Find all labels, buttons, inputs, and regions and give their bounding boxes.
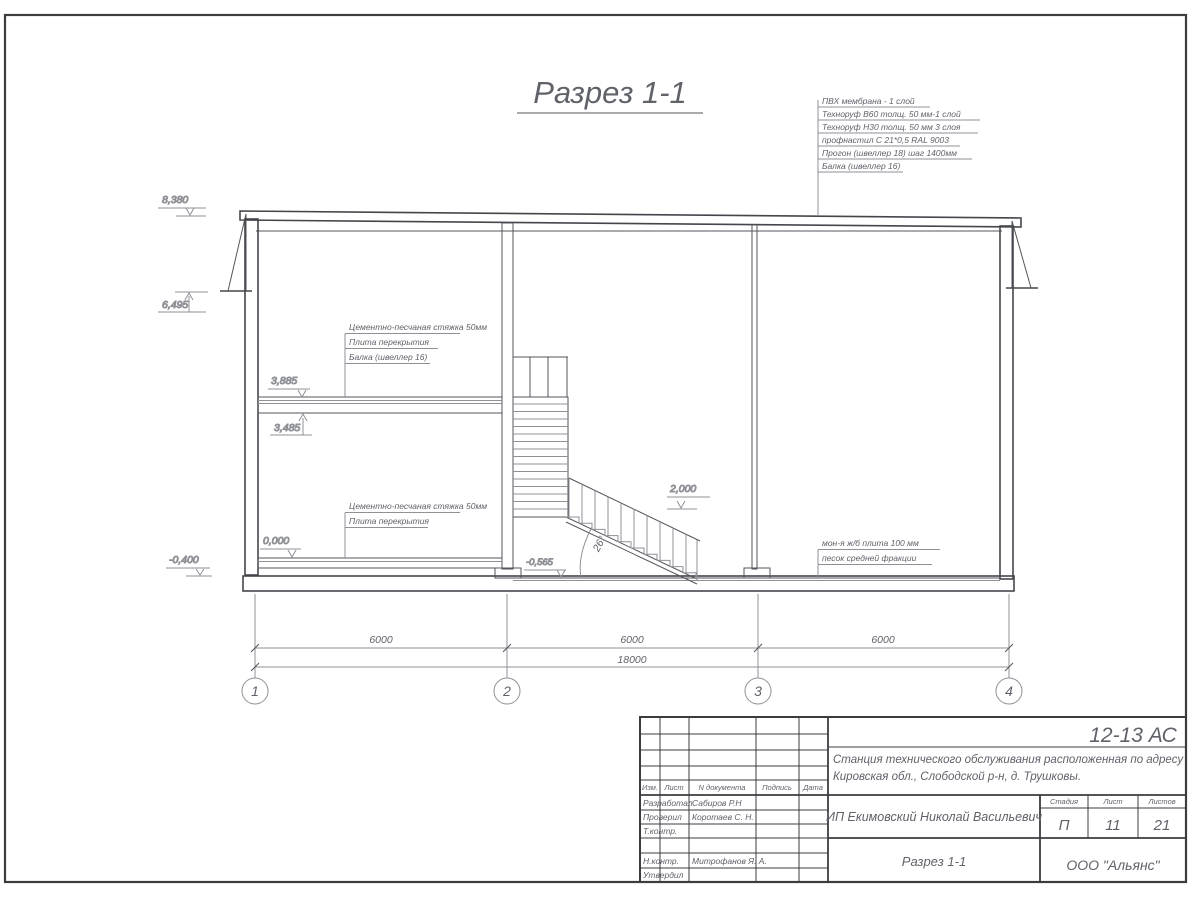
right-wall — [1000, 226, 1013, 579]
svg-text:0,000: 0,000 — [263, 535, 289, 547]
floor2-legend-line: Балка (швеллер 16) — [349, 352, 427, 362]
elevation-pit: -0,565 — [524, 557, 566, 577]
header-list: Лист — [663, 783, 683, 792]
elevation-roof: 8,380 — [158, 194, 206, 216]
roof-legend-line: Балка (швеллер 16) — [822, 161, 900, 171]
doc-code: 12-13 АС — [1089, 724, 1177, 747]
dim-bay2: 6000 — [620, 634, 644, 646]
axis-2: 2 — [502, 683, 511, 699]
header-ndoc: N документа — [699, 783, 746, 792]
axis-4: 4 — [1005, 683, 1013, 699]
name-proveril: Коротаев С. Н. — [692, 812, 754, 822]
role-utverdil: Утвердил — [642, 870, 684, 880]
floor1-legend: Цементно-песчаная стяжка 50мм Плита пере… — [345, 501, 487, 558]
dim-total: 18000 — [617, 654, 646, 666]
role-proveril: Проверил — [643, 812, 682, 822]
role-nkontr: Н.контр. — [643, 856, 679, 866]
svg-text:-0,400: -0,400 — [169, 554, 199, 566]
elevation-landing: 2,000 — [667, 483, 710, 509]
stair-angle-text: 26° — [590, 534, 609, 555]
role-razrabotal: Разработал — [643, 798, 693, 808]
sheet-title: Разрез 1-1 — [902, 854, 966, 869]
axis3-column — [752, 225, 757, 569]
elevation-floor1: 0,000 — [260, 535, 301, 557]
project-line1: Станция технического обслуживания распол… — [833, 754, 1184, 766]
floor2-legend: Цементно-песчаная стяжка 50мм Плита пере… — [345, 322, 487, 397]
roof-legend-line: Техноруф Н30 толщ. 50 мм 3 слоя — [822, 122, 961, 132]
ground-legend: мон-я ж/б плита 100 мм песок средней фра… — [818, 538, 940, 578]
stage-value: П — [1059, 817, 1070, 834]
floor2-legend-line: Плита перекрытия — [349, 337, 429, 347]
floor2-slab — [258, 397, 502, 413]
dimension-system: 6000 6000 6000 18000 1 2 3 4 — [242, 594, 1022, 704]
axis2-wall — [502, 223, 513, 569]
ground-legend-line: мон-я ж/б плита 100 мм — [822, 538, 919, 548]
roof-legend-line: ПВХ мембрана - 1 слой — [822, 96, 915, 106]
roof-legend-line: Техноруф В60 толщ. 50 мм-1 слой — [822, 109, 961, 119]
roof-slab — [240, 211, 1021, 227]
name-nkontr: Митрофанов Я. А. — [692, 856, 767, 866]
building-section — [220, 211, 1038, 591]
svg-text:-0,565: -0,565 — [526, 557, 554, 568]
left-wall — [245, 219, 258, 575]
title-block: Изм. Лист N документа Подпись Дата Разра… — [640, 717, 1186, 882]
floor2-legend-line: Цементно-песчаная стяжка 50мм — [349, 322, 487, 332]
sheets-value: 21 — [1153, 817, 1171, 834]
header-data: Дата — [802, 783, 823, 792]
stair-angle-annotation: 26° — [580, 527, 609, 578]
sheet-value: 11 — [1105, 817, 1121, 834]
dim-bay3: 6000 — [871, 634, 895, 646]
ground-legend-line: песок средней фракции — [822, 553, 917, 563]
elevation-marks: 8,380 6,495 3,885 3,485 0,000 — [158, 194, 710, 577]
roof-legend-line: профнастил С 21*0,5 RAL 9003 — [822, 135, 949, 145]
floor1-legend-line: Цементно-песчаная стяжка 50мм — [349, 501, 487, 511]
floor1-legend-line: Плита перекрытия — [349, 516, 429, 526]
project-line2: Кировская обл., Слободской р-н, д. Трушк… — [833, 771, 1081, 783]
axis-1: 1 — [251, 683, 259, 699]
upper-flight-treads — [513, 404, 568, 509]
svg-text:6,495: 6,495 — [162, 299, 188, 311]
elevation-foundation: -0,400 — [166, 554, 212, 576]
sheets-label: Листов — [1147, 797, 1175, 806]
floor2-railing — [513, 357, 568, 397]
drawing-sheet: Разрез 1-1 — [0, 0, 1200, 900]
header-podpis: Подпись — [762, 783, 792, 792]
svg-text:3,485: 3,485 — [274, 422, 300, 434]
svg-text:2,000: 2,000 — [669, 483, 696, 495]
section-drawing: Разрез 1-1 — [0, 0, 1200, 900]
left-eave — [228, 214, 246, 291]
roof-legend: ПВХ мембрана - 1 слой Техноруф В60 толщ.… — [818, 96, 980, 215]
roof-legend-line: Прогон (швеллер 18) шаг 1400мм — [822, 148, 957, 158]
role-tkontr: Т.контр. — [643, 826, 677, 836]
company-name: ООО "Альянс" — [1066, 857, 1160, 873]
svg-text:3,885: 3,885 — [271, 375, 297, 387]
sheet-label: Лист — [1102, 797, 1122, 806]
elevation-eaves: 6,495 — [158, 292, 208, 312]
axis-3: 3 — [754, 683, 762, 699]
axis-bubbles: 1 2 3 4 — [242, 678, 1022, 704]
page-border — [5, 15, 1186, 882]
stage-label: Стадия — [1050, 797, 1078, 806]
client-name: ИП Екимовский Николай Васильевич — [826, 810, 1042, 824]
drawing-title-text: Разрез 1-1 — [533, 75, 687, 110]
name-razrabotal: Сабиров Р.Н — [692, 798, 742, 808]
elevation-slab2-bottom: 3,485 — [270, 414, 312, 435]
drawing-title: Разрез 1-1 — [517, 75, 703, 113]
staircase: 26° — [513, 357, 700, 584]
header-izm: Изм. — [642, 783, 658, 792]
floor1-slab — [258, 558, 502, 568]
right-eave — [1012, 221, 1031, 288]
elevation-slab2-top: 3,885 — [268, 375, 310, 397]
dim-bay1: 6000 — [369, 634, 393, 646]
svg-text:8,380: 8,380 — [162, 194, 188, 206]
